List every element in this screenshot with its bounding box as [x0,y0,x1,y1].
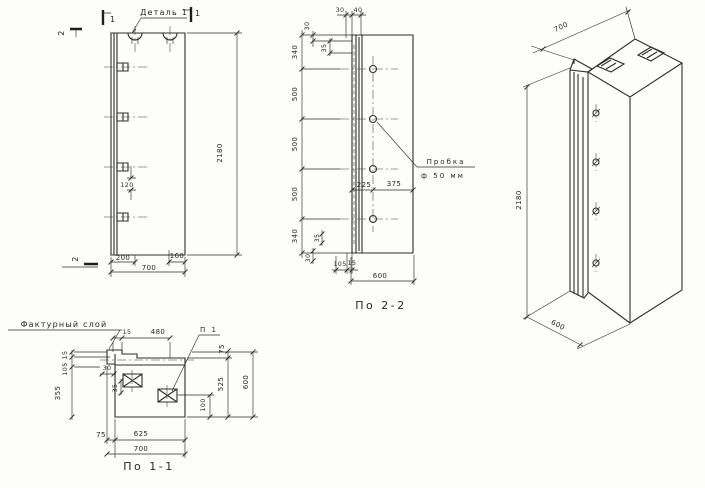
dim-s11-l105: 105 [62,362,69,375]
layer-label: Фактурный слой [21,320,108,329]
dim-front-160: 160 [170,252,185,260]
dim-s22-225: 225 [357,181,372,189]
dim-s22-tl30: 30 [304,22,311,31]
dim-s22-600: 600 [373,272,388,280]
dim-s11-b700: 700 [134,445,149,453]
dim-s22-tl35: 35 [321,44,328,53]
dim-s22-chain-500b: 500 [291,137,299,152]
section-mark-2b: 2 [71,256,80,262]
dim-s22-chain-340a: 340 [291,45,299,60]
dim-s22-chain-500a: 500 [291,87,299,102]
dim-front-700: 700 [142,264,157,272]
dim-s11-l15: 15 [62,351,69,360]
dim-front-120: 120 [120,182,133,189]
dim-s11-355: 355 [54,386,62,401]
panel-drawing: Деталь 1 1 1 2 2 200 160 700 2180 120 [0,0,705,488]
dim-s22-top30: 30 [336,7,345,14]
dim-s22-375: 375 [387,180,402,188]
iso-facing-slab [570,59,592,298]
dim-s11-hook35: 35 [112,384,119,393]
section-mark-1b: 1 [195,9,201,18]
dim-s22-chain-340b: 340 [291,229,299,244]
section-mark-1a: 1 [110,15,116,24]
front-side-anchors [117,63,128,221]
front-lifting-loops [128,33,177,40]
dim-s11-b75: 75 [96,431,106,439]
dim-s11-480: 480 [151,328,166,336]
front-view: Деталь 1 1 1 2 2 200 160 700 2180 120 [57,7,242,277]
cut-line-2-strokes [70,29,98,264]
iso-side-holes [592,109,600,267]
s22-outline [352,35,413,253]
dim-s11-625: 625 [134,430,149,438]
dim-s11-hook30: 30 [103,365,112,372]
dim-s22-105: 105 [333,261,346,268]
section-mark-2a: 2 [57,30,66,36]
loop-leader [172,335,220,391]
dim-s11-top15: 15 [123,329,132,336]
isometric-view: 700 2180 600 [515,7,682,349]
iso-dim-lines [523,7,635,349]
s11-loop-anchors [123,374,177,402]
dim-front-2180: 2180 [216,143,224,162]
front-panel-outline [111,33,185,255]
dim-s22-bl30: 30 [305,254,312,263]
dim-iso-2180: 2180 [515,190,523,209]
dim-s11-600: 600 [242,375,250,390]
dim-s11-r75: 75 [218,344,226,354]
drawing-sheet: Деталь 1 1 1 2 2 200 160 700 2180 120 [0,0,705,488]
caption-s22: По 2-2 [355,299,406,312]
detail-leader [132,18,187,33]
s22-dim-lines [302,11,414,285]
dim-s22-chain-500c: 500 [291,187,299,202]
s11-centerline [100,360,196,407]
layer-leader [8,330,122,349]
section-1-1-view: Фактурный слой П 1 15 480 75 525 600 100… [8,320,258,473]
dim-s11-525: 525 [217,377,225,392]
plug-label-line2: ф 50 мм [421,172,465,180]
section-2-2-view: Пробка ф 50 мм 30 40 30 35 340 500 500 5… [291,7,475,312]
s22-centerlines [340,56,398,232]
dim-s22-top40: 40 [354,7,363,14]
dim-s11-100: 100 [200,398,207,411]
iso-top-loop-recesses [597,47,664,72]
detail-label: Деталь 1 [140,8,188,17]
dim-iso-700: 700 [553,20,570,33]
dim-front-200: 200 [116,254,131,262]
plug-label-line1: Пробка [427,158,466,166]
caption-s11: По 1-1 [123,460,174,473]
iso-block [588,39,682,323]
dim-s22-bl35: 35 [314,234,321,243]
dim-s22-15: 15 [348,260,357,267]
loop-label: П 1 [200,326,218,334]
